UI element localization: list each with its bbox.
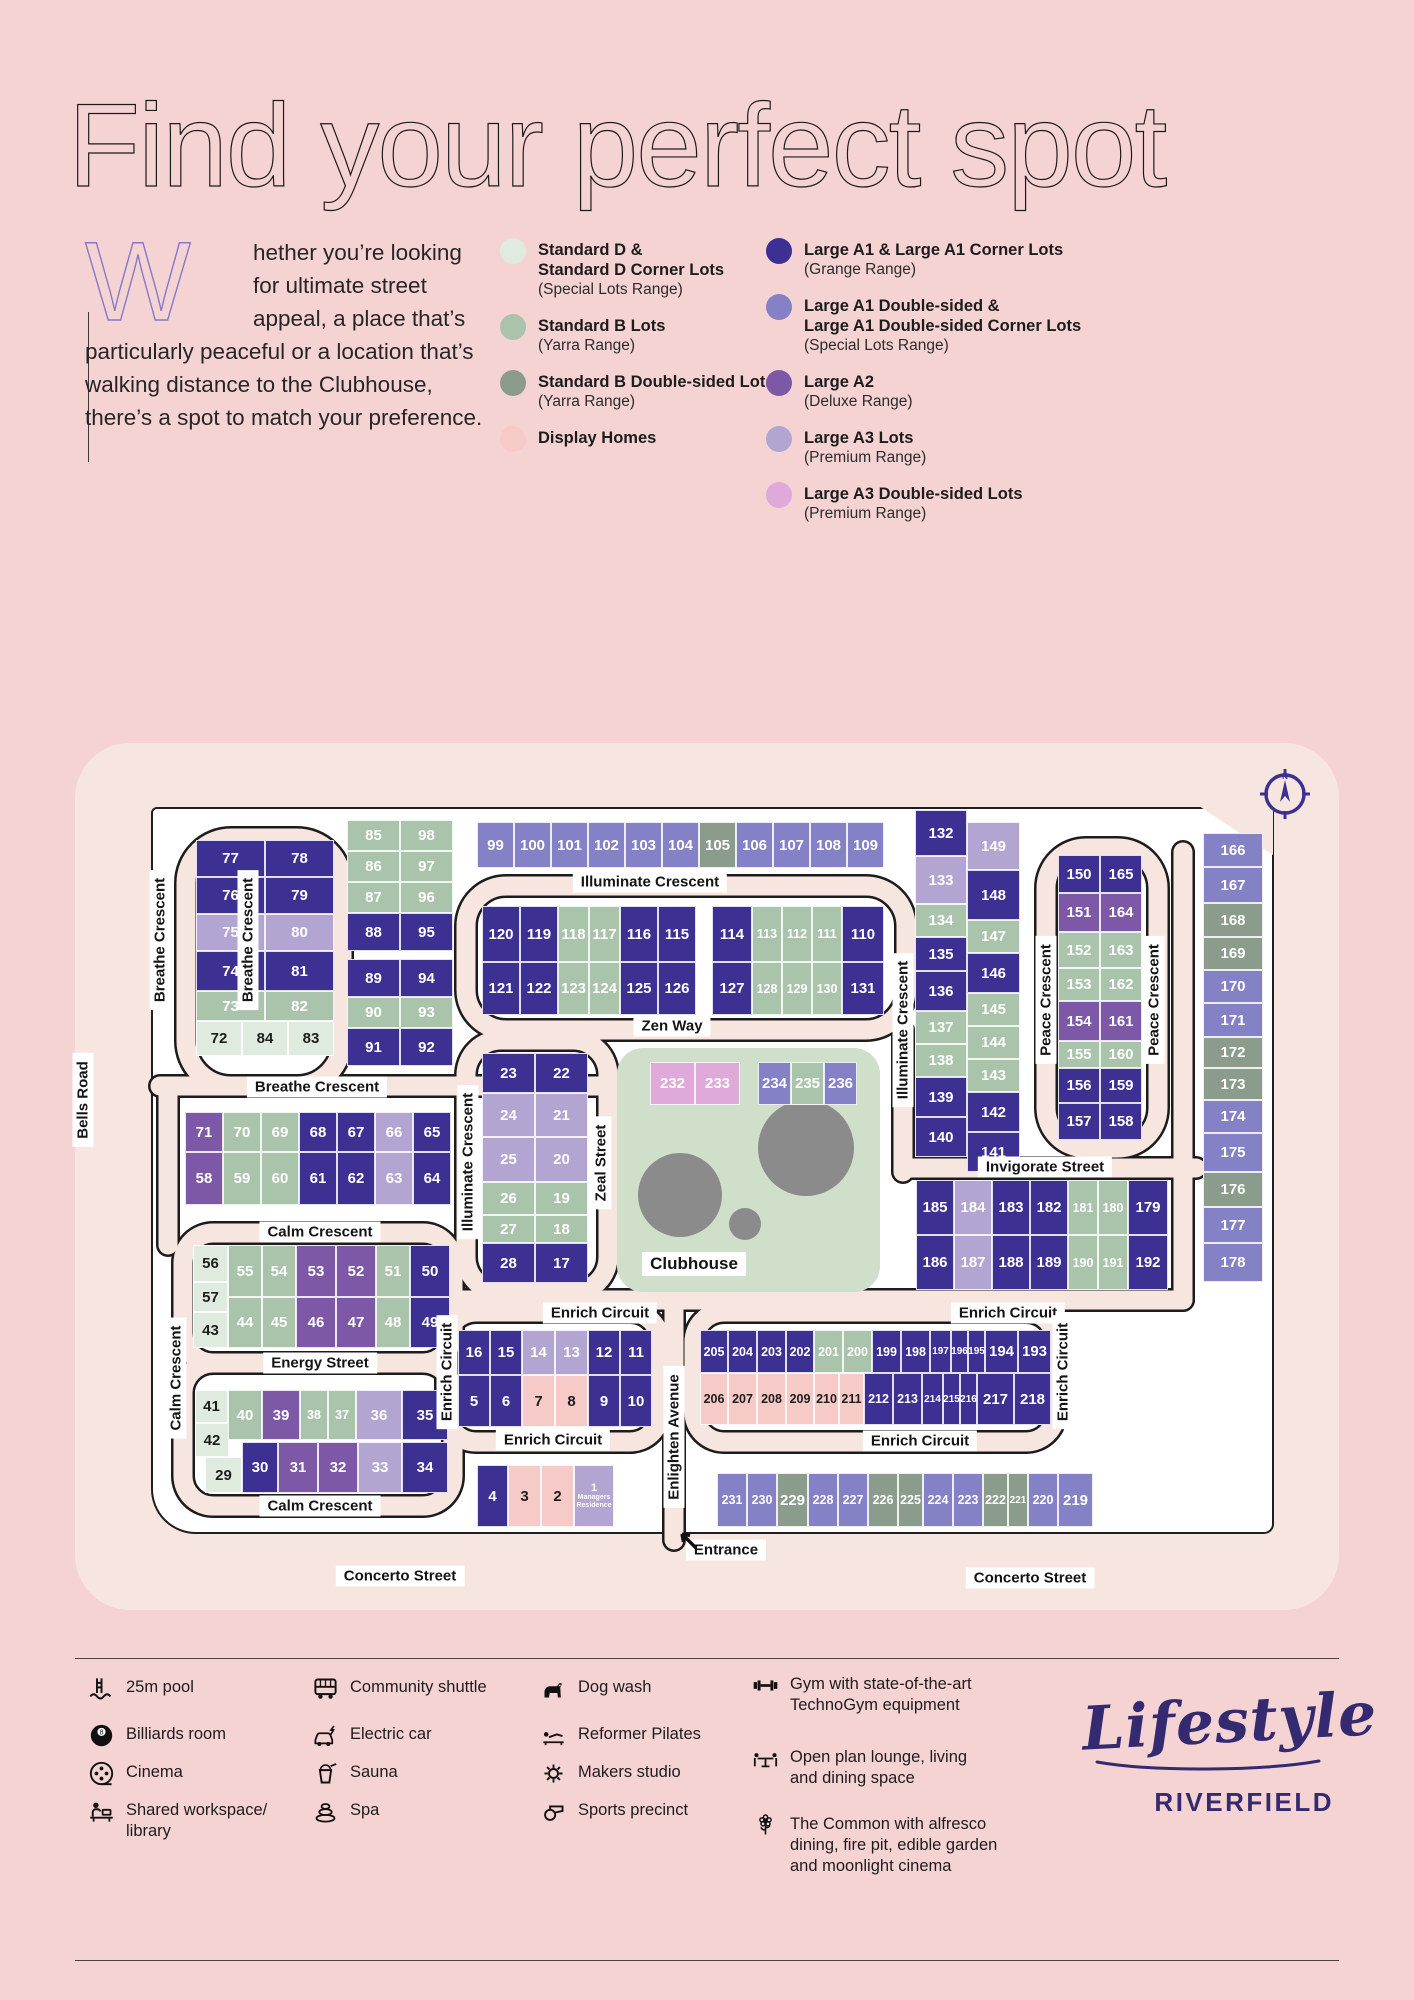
lot-102: 102: [588, 822, 625, 868]
street-label-breathe-crescent: Breathe Crescent: [247, 1077, 387, 1098]
legend-label: Large A3 Double-sided Lots(Premium Range…: [804, 484, 1023, 524]
amenity-label: The Common with alfresco dining, fire pi…: [790, 1814, 997, 1877]
lot-189: 189: [1030, 1235, 1068, 1290]
lot-199: 199: [872, 1330, 901, 1373]
legend-swatch-icon: [500, 314, 526, 340]
legend-label: Large A1 & Large A1 Corner Lots(Grange R…: [804, 240, 1063, 280]
lot-116: 116: [620, 906, 658, 962]
lot-84: 84: [242, 1021, 288, 1056]
clubhouse-building: [758, 1100, 854, 1196]
lot-117: 117: [589, 906, 620, 962]
lot-210: 210: [814, 1373, 839, 1425]
lot-38: 38: [300, 1390, 328, 1440]
lot-203: 203: [757, 1330, 786, 1373]
lot-160: 160: [1100, 1041, 1142, 1068]
lot-25: 25: [482, 1137, 535, 1182]
legend-label: Standard B Double-sided Lots (Yarra Rang…: [538, 372, 775, 412]
lot-21: 21: [535, 1093, 588, 1137]
amenity-item: Sports precinct: [540, 1798, 688, 1825]
lot-232: 232: [650, 1062, 695, 1105]
shuttle-icon: [312, 1675, 339, 1702]
lot-68: 68: [299, 1112, 337, 1152]
lot-57: 57: [193, 1282, 228, 1312]
gym-icon: [752, 1672, 779, 1699]
lot-89: 89: [347, 959, 400, 997]
lot-98: 98: [400, 820, 453, 851]
lot-171: 171: [1203, 1003, 1263, 1037]
lot-45: 45: [262, 1297, 296, 1348]
amenity-label: Billiards room: [126, 1724, 226, 1745]
lot-166: 166: [1203, 833, 1263, 867]
lot-236: 236: [824, 1062, 857, 1105]
lot-9: 9: [588, 1375, 620, 1427]
amenity-label: Sports precinct: [578, 1800, 688, 1821]
lot-95: 95: [400, 913, 453, 951]
lot-190: 190: [1068, 1235, 1098, 1290]
pilates-icon: [540, 1722, 567, 1749]
lot-40: 40: [228, 1390, 262, 1440]
lot-53: 53: [296, 1245, 336, 1297]
amenity-item: Cinema: [88, 1760, 183, 1787]
lot-92: 92: [400, 1028, 453, 1066]
lot-17: 17: [535, 1243, 588, 1283]
lot-62: 62: [337, 1152, 375, 1205]
legend-item: Standard B Lots(Yarra Range): [500, 316, 665, 356]
street-label-energy-street: Energy Street: [263, 1353, 377, 1374]
lot-168: 168: [1203, 903, 1263, 937]
lot-226: 226: [868, 1473, 898, 1527]
lot-99: 99: [477, 822, 514, 868]
clubhouse-building: [638, 1153, 722, 1237]
lot-22: 22: [535, 1053, 588, 1093]
amenity-label: Spa: [350, 1800, 379, 1821]
lot-151: 151: [1058, 893, 1100, 932]
lot-211: 211: [839, 1373, 864, 1425]
street-label-calm-crescent: Calm Crescent: [259, 1222, 380, 1243]
lot-82: 82: [265, 991, 334, 1021]
svg-text:8: 8: [99, 1728, 103, 1737]
lot-158: 158: [1100, 1103, 1142, 1140]
lot-221: 221: [1008, 1473, 1028, 1527]
lot-106: 106: [736, 822, 773, 868]
lot-12: 12: [588, 1330, 620, 1375]
lot-47: 47: [336, 1297, 376, 1348]
lot-31: 31: [278, 1442, 318, 1493]
lot-122: 122: [520, 962, 558, 1015]
street-label-bells-road: Bells Road: [73, 1053, 94, 1147]
amenity-label: Dog wash: [578, 1677, 651, 1698]
lot-97: 97: [400, 851, 453, 882]
lot-135: 135: [915, 937, 967, 971]
lot-192: 192: [1128, 1235, 1168, 1290]
pool-icon: [88, 1675, 115, 1702]
lot-94: 94: [400, 959, 453, 997]
lot-176: 176: [1203, 1172, 1263, 1207]
lot-202: 202: [786, 1330, 814, 1373]
lot-70: 70: [223, 1112, 261, 1152]
lot-27: 27: [482, 1215, 535, 1243]
lot-132: 132: [915, 810, 967, 856]
lot-222: 222: [983, 1473, 1008, 1527]
lot-162: 162: [1100, 968, 1142, 1001]
lot-24: 24: [482, 1093, 535, 1137]
lot-18: 18: [535, 1215, 588, 1243]
lot-195: 195: [968, 1330, 985, 1373]
lot-207: 207: [728, 1373, 757, 1425]
lot-200: 200: [843, 1330, 872, 1373]
lot-3: 3: [508, 1465, 541, 1527]
lot-156: 156: [1058, 1068, 1100, 1103]
lot-188: 188: [992, 1235, 1030, 1290]
lot-193: 193: [1018, 1330, 1051, 1373]
lot-48: 48: [376, 1297, 410, 1348]
amenity-item: Community shuttle: [312, 1675, 487, 1702]
lot-50: 50: [410, 1245, 450, 1297]
lot-108: 108: [810, 822, 847, 868]
amenity-item: The Common with alfresco dining, fire pi…: [752, 1812, 997, 1877]
lot-41: 41: [195, 1390, 228, 1423]
amenity-item: Open plan lounge, living and dining spac…: [752, 1745, 967, 1789]
lot-51: 51: [376, 1245, 410, 1297]
lot-85: 85: [347, 820, 400, 851]
lot-146: 146: [967, 953, 1020, 993]
compass-north-icon: N: [1257, 766, 1313, 822]
legend-item: Standard D &Standard D Corner Lots(Speci…: [500, 240, 724, 300]
lot-235: 235: [791, 1062, 824, 1105]
lot-44: 44: [228, 1297, 262, 1348]
lot-134: 134: [915, 904, 967, 937]
lot-115: 115: [658, 906, 696, 962]
lot-7: 7: [522, 1375, 555, 1427]
legend-label: Large A1 Double-sided &Large A1 Double-s…: [804, 296, 1081, 356]
lot-20: 20: [535, 1137, 588, 1182]
clubhouse-building: [729, 1208, 761, 1240]
logo-sub-text: RIVERFIELD: [1082, 1787, 1334, 1818]
amenity-item: Dog wash: [540, 1675, 651, 1702]
street-label-breathe-crescent: Breathe Crescent: [150, 870, 171, 1010]
street-label-calm-crescent: Calm Crescent: [166, 1317, 187, 1438]
lot-52: 52: [336, 1245, 376, 1297]
page-title: Find your perfect spot: [68, 78, 1165, 214]
lot-60: 60: [261, 1152, 299, 1205]
lounge-icon: [752, 1745, 779, 1772]
lot-208: 208: [757, 1373, 786, 1425]
lot-71: 71: [185, 1112, 223, 1152]
lot-217: 217: [977, 1373, 1014, 1425]
lot-224: 224: [923, 1473, 953, 1527]
lot-218: 218: [1014, 1373, 1051, 1425]
billiards-icon: 8: [88, 1722, 115, 1749]
street-label-illuminate-crescent: Illuminate Crescent: [458, 1085, 479, 1239]
street-label-breathe-crescent: Breathe Crescent: [238, 870, 259, 1010]
legend-item: Standard B Double-sided Lots (Yarra Rang…: [500, 372, 775, 412]
lot-13: 13: [555, 1330, 588, 1375]
lot-157: 157: [1058, 1103, 1100, 1140]
lot-155: 155: [1058, 1041, 1100, 1068]
lot-54: 54: [262, 1245, 296, 1297]
lot-119: 119: [520, 906, 558, 962]
lot-227: 227: [838, 1473, 868, 1527]
lot-133: 133: [915, 856, 967, 904]
cinema-icon: [88, 1760, 115, 1787]
lot-165: 165: [1100, 855, 1142, 893]
lot-103: 103: [625, 822, 662, 868]
lot-11: 11: [620, 1330, 652, 1375]
lot-37: 37: [328, 1390, 356, 1440]
lot-63: 63: [375, 1152, 413, 1205]
sports-icon: [540, 1798, 567, 1825]
amenity-item: Reformer Pilates: [540, 1722, 701, 1749]
lot-28: 28: [482, 1243, 535, 1283]
street-label-illuminate-crescent: Illuminate Crescent: [893, 953, 914, 1107]
legend-label: Display Homes: [538, 428, 656, 452]
amenity-label: Makers studio: [578, 1762, 681, 1783]
lot-5: 5: [458, 1375, 490, 1427]
lot-159: 159: [1100, 1068, 1142, 1103]
brochure-page: Find your perfect spot Whether you’re lo…: [0, 0, 1414, 2000]
lot-118: 118: [558, 906, 589, 962]
lot-191: 191: [1098, 1235, 1128, 1290]
street-label-peace-crescent: Peace Crescent: [1144, 936, 1165, 1064]
workspace-icon: [88, 1798, 115, 1825]
lot-2: 2: [541, 1465, 574, 1527]
lot-148: 148: [967, 870, 1020, 920]
lot-177: 177: [1203, 1207, 1263, 1243]
svg-text:N: N: [1282, 772, 1288, 781]
lot-10: 10: [620, 1375, 652, 1427]
lot-194: 194: [985, 1330, 1018, 1373]
legend-swatch-icon: [766, 426, 792, 452]
lot-153: 153: [1058, 968, 1100, 1001]
lot-138: 138: [915, 1044, 967, 1077]
lot-46: 46: [296, 1297, 336, 1348]
lot-29: 29: [205, 1457, 242, 1493]
street-label-enrich-circuit: Enrich Circuit: [1053, 1315, 1074, 1429]
amenity-item: 8Billiards room: [88, 1722, 226, 1749]
lot-209: 209: [786, 1373, 814, 1425]
lot-187: 187: [954, 1235, 992, 1290]
lot-214: 214: [922, 1373, 943, 1425]
lot-213: 213: [893, 1373, 922, 1425]
lot-87: 87: [347, 882, 400, 913]
lot-112: 112: [782, 906, 812, 962]
lot-93: 93: [400, 997, 453, 1028]
lot-197: 197: [930, 1330, 951, 1373]
amenity-item: Electric car: [312, 1722, 432, 1749]
lot-33: 33: [358, 1442, 402, 1493]
lot-139: 139: [915, 1077, 967, 1117]
lot-169: 169: [1203, 937, 1263, 970]
lot-204: 204: [728, 1330, 757, 1373]
lot-206: 206: [700, 1373, 728, 1425]
lot-180: 180: [1098, 1180, 1128, 1235]
lot-167: 167: [1203, 867, 1263, 903]
lot-131: 131: [842, 962, 884, 1015]
lot-42: 42: [195, 1423, 229, 1457]
amenity-label: Open plan lounge, living and dining spac…: [790, 1747, 967, 1789]
lot-225: 225: [898, 1473, 923, 1527]
lot-196: 196: [951, 1330, 968, 1373]
lot-125: 125: [620, 962, 658, 1015]
lot-126: 126: [658, 962, 696, 1015]
lot-174: 174: [1203, 1100, 1263, 1133]
lot-230: 230: [747, 1473, 777, 1527]
amenity-label: Community shuttle: [350, 1677, 487, 1698]
street-label-peace-crescent: Peace Crescent: [1036, 936, 1057, 1064]
amenity-label: Gym with state-of-the-art TechnoGym equi…: [790, 1674, 972, 1716]
lot-4: 4: [477, 1465, 508, 1527]
legend-swatch-icon: [766, 294, 792, 320]
lot-154: 154: [1058, 1001, 1100, 1041]
lot-19: 19: [535, 1182, 588, 1215]
street-label-invigorate-street: Invigorate Street: [978, 1157, 1112, 1178]
lot-65: 65: [413, 1112, 451, 1152]
lot-107: 107: [773, 822, 810, 868]
lot-229: 229: [777, 1473, 808, 1527]
lot-178: 178: [1203, 1243, 1263, 1282]
lot-205: 205: [700, 1330, 728, 1373]
lot-183: 183: [992, 1180, 1030, 1235]
lot-130: 130: [812, 962, 842, 1015]
legend-item: Large A2(Deluxe Range): [766, 372, 913, 412]
lot-14: 14: [522, 1330, 555, 1375]
amenity-item: Gym with state-of-the-art TechnoGym equi…: [752, 1672, 972, 1716]
street-label-enrich-circuit: Enrich Circuit: [496, 1430, 610, 1451]
street-label-enrich-circuit: Enrich Circuit: [863, 1431, 977, 1452]
lot-109: 109: [847, 822, 884, 868]
lot-1: 1Managers Residence: [574, 1465, 614, 1527]
lot-105: 105: [699, 822, 736, 868]
lot-234: 234: [758, 1062, 791, 1105]
lot-91: 91: [347, 1028, 400, 1066]
lot-179: 179: [1128, 1180, 1168, 1235]
amenity-label: 25m pool: [126, 1677, 194, 1698]
amenity-label: Electric car: [350, 1724, 432, 1745]
lot-6: 6: [490, 1375, 522, 1427]
street-label-enrich-circuit: Enrich Circuit: [543, 1303, 657, 1324]
legend-swatch-icon: [766, 238, 792, 264]
lot-43: 43: [193, 1312, 228, 1348]
lot-142: 142: [967, 1092, 1020, 1132]
lot-181: 181: [1068, 1180, 1098, 1235]
lot-86: 86: [347, 851, 400, 882]
lot-147: 147: [967, 920, 1020, 953]
amenity-item: Shared workspace/ library: [88, 1798, 267, 1842]
lot-23: 23: [482, 1053, 535, 1093]
legend-label: Large A2(Deluxe Range): [804, 372, 913, 412]
lot-150: 150: [1058, 855, 1100, 893]
lot-228: 228: [808, 1473, 838, 1527]
dog-wash-icon: [540, 1675, 567, 1702]
street-label-enrich-circuit: Enrich Circuit: [951, 1303, 1065, 1324]
street-label-concerto-street: Concerto Street: [966, 1568, 1095, 1589]
electric-car-icon: [312, 1722, 339, 1749]
lot-198: 198: [901, 1330, 930, 1373]
legend-swatch-icon: [500, 426, 526, 452]
lot-90: 90: [347, 997, 400, 1028]
lot-61: 61: [299, 1152, 337, 1205]
lot-81: 81: [265, 951, 334, 991]
legend-item: Large A3 Double-sided Lots(Premium Range…: [766, 484, 1023, 524]
lot-120: 120: [482, 906, 520, 962]
lot-34: 34: [402, 1442, 448, 1493]
lot-170: 170: [1203, 970, 1263, 1003]
lot-215: 215: [943, 1373, 960, 1425]
lot-96: 96: [400, 882, 453, 913]
lot-231: 231: [717, 1473, 747, 1527]
street-label-illuminate-crescent: Illuminate Crescent: [573, 872, 727, 893]
lot-66: 66: [375, 1112, 413, 1152]
lot-59: 59: [223, 1152, 261, 1205]
lot-101: 101: [551, 822, 588, 868]
lot-78: 78: [265, 840, 334, 877]
logo-script-text: Lifestyle: [1080, 1681, 1335, 1764]
amenity-label: Sauna: [350, 1762, 398, 1783]
lot-186: 186: [916, 1235, 954, 1290]
lot-140: 140: [915, 1117, 967, 1157]
lot-26: 26: [482, 1182, 535, 1215]
lot-212: 212: [864, 1373, 893, 1425]
lot-124: 124: [589, 962, 620, 1015]
lot-72: 72: [196, 1021, 242, 1056]
lot-80: 80: [265, 914, 334, 951]
lot-56: 56: [193, 1245, 228, 1282]
lot-184: 184: [954, 1180, 992, 1235]
lot-152: 152: [1058, 932, 1100, 968]
legend-item: Large A1 & Large A1 Corner Lots(Grange R…: [766, 240, 1063, 280]
lot-83: 83: [288, 1021, 334, 1056]
amenity-label: Cinema: [126, 1762, 183, 1783]
lot-69: 69: [261, 1112, 299, 1152]
lifestyle-riverfield-logo: Lifestyle RIVERFIELD: [1082, 1688, 1334, 1818]
lot-55: 55: [228, 1245, 262, 1297]
street-label-zen-way: Zen Way: [633, 1016, 710, 1037]
lot-8: 8: [555, 1375, 588, 1427]
street-label-enrich-circuit: Enrich Circuit: [437, 1315, 458, 1429]
lot-163: 163: [1100, 932, 1142, 968]
lot-39: 39: [262, 1390, 300, 1440]
footer-divider-top: [75, 1658, 1339, 1659]
entrance-arrow-icon: [676, 1528, 700, 1552]
lot-175: 175: [1203, 1133, 1263, 1172]
common-icon: [752, 1812, 779, 1839]
lot-216: 216: [960, 1373, 977, 1425]
amenity-label: Shared workspace/ library: [126, 1800, 267, 1842]
lot-164: 164: [1100, 893, 1142, 932]
lot-161: 161: [1100, 1001, 1142, 1041]
sauna-icon: [312, 1760, 339, 1787]
legend-swatch-icon: [500, 370, 526, 396]
footer-divider-bottom: [75, 1960, 1339, 1961]
lot-185: 185: [916, 1180, 954, 1235]
lot-30: 30: [242, 1442, 278, 1493]
lot-121: 121: [482, 962, 520, 1015]
lot-111: 111: [812, 906, 842, 962]
street-label-calm-crescent: Calm Crescent: [259, 1496, 380, 1517]
legend-item: Large A3 Lots(Premium Range): [766, 428, 926, 468]
lot-123: 123: [558, 962, 589, 1015]
lot-100: 100: [514, 822, 551, 868]
lot-88: 88: [347, 913, 400, 951]
intro-paragraph: Whether you’re looking for ultimate stre…: [85, 236, 483, 434]
lot-129: 129: [782, 962, 812, 1015]
clubhouse-label: Clubhouse: [642, 1252, 746, 1276]
legend-label: Standard B Lots(Yarra Range): [538, 316, 665, 356]
street-label-concerto-street: Concerto Street: [336, 1566, 465, 1587]
lot-16: 16: [458, 1330, 490, 1375]
makers-icon: [540, 1760, 567, 1787]
lot-114: 114: [712, 906, 752, 962]
